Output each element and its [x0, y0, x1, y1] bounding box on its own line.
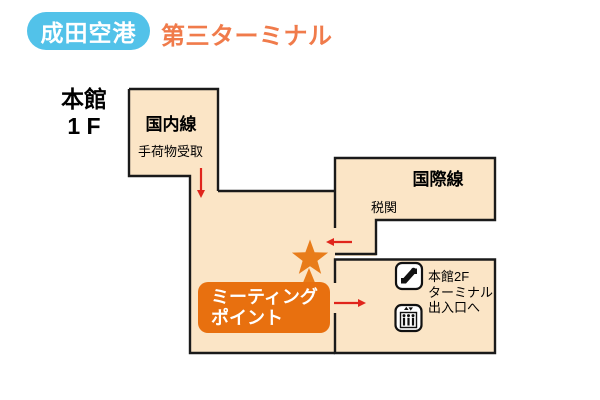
elevator-icon [396, 305, 422, 331]
floor-map [0, 0, 600, 400]
building-floor-label: 本館 1 F [55, 86, 113, 139]
exit-directions-label: 本館2F ターミナル 出入口へ [428, 269, 493, 316]
terminal-map-page: 成田空港 第三ターミナル 本館 1 F 国内線 手荷物受取 国際線 税関 本館2… [0, 0, 600, 400]
international-lines-label: 国際線 [405, 165, 471, 190]
escalator-icon [396, 263, 422, 289]
baggage-claim-label: 手荷物受取 [138, 141, 203, 160]
terminal-title: 第三ターミナル [161, 16, 333, 51]
customs-label: 税関 [371, 197, 397, 216]
meeting-point-callout: ミーティング ポイント [198, 282, 330, 333]
airport-name-badge: 成田空港 [27, 12, 150, 50]
domestic-lines-label: 国内線 [140, 110, 202, 135]
airport-name: 成田空港 [41, 14, 137, 48]
